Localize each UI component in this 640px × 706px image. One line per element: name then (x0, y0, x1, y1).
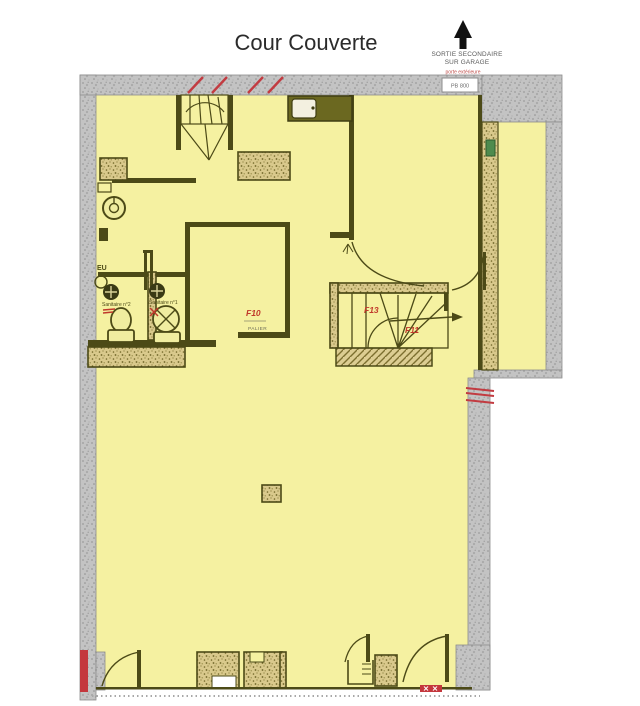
wall-right-strip (546, 122, 562, 370)
exit-note-line1: SORTIE SECONDAIRE (431, 51, 502, 58)
door-leaf-landing (483, 252, 486, 290)
wall-f10-right (285, 222, 290, 338)
label-f11: F11 (405, 325, 419, 335)
wall-corridor-divider (482, 122, 498, 370)
wc-south-bench (88, 347, 185, 367)
pier-a-notch (212, 676, 236, 688)
toilet-icon (111, 308, 131, 332)
exit-door-ref: PB 800 (451, 84, 469, 90)
up-arrow-stem (460, 36, 467, 49)
wall-bottom-right-block (456, 645, 490, 690)
wall-wc-bottom (88, 340, 216, 347)
up-arrow-icon (454, 20, 472, 38)
wall-right-lower (468, 378, 490, 690)
wall-f10-top (185, 222, 290, 227)
floor-main-room (96, 378, 468, 688)
wall-f10-left (185, 222, 190, 345)
pipe-right (150, 252, 153, 290)
label-f10: F10 (246, 308, 261, 318)
toilet-tank (154, 332, 180, 343)
pipe-left (144, 252, 147, 290)
red-marker-left-wall (80, 650, 88, 692)
floorplan-drawing: Cour Couverte SORTIE SECONDAIRE SUR GARA… (0, 0, 640, 706)
understair-hatched-area (336, 348, 432, 366)
door-leaf-bottom-right (445, 634, 449, 682)
label-sanitaire2: Sanitaire n°2 (102, 302, 131, 308)
floor-corridor (498, 122, 546, 370)
toilet-tank (108, 330, 134, 342)
label-f13: F13 (364, 305, 379, 315)
label-eu: EU (97, 265, 107, 272)
shopfront-pier-c (375, 655, 397, 686)
wall-partition-stub (330, 232, 351, 238)
shopfront-sliver (280, 652, 286, 688)
wall-f10-bottom (238, 332, 290, 338)
duct-box (99, 228, 108, 241)
hatched-table (238, 152, 290, 180)
label-palier: PALIER (248, 326, 267, 332)
pier-upper-left (100, 158, 127, 180)
wall-stair-right-cheek (228, 95, 233, 150)
wall-left (80, 75, 96, 700)
wall-stair-left-cheek (176, 95, 181, 150)
stair-enclosure-top-wall (330, 283, 448, 293)
exit-note-sub: porte extérieure (445, 70, 480, 76)
door-leaf-bottom-left (137, 650, 141, 688)
shopfront-threshold (96, 687, 472, 690)
wall-corridor-end (474, 370, 562, 378)
center-pillar (262, 485, 281, 502)
floorplan-page: Cour Couverte SORTIE SECONDAIRE SUR GARA… (0, 0, 640, 706)
green-vent-mark (486, 140, 495, 156)
wall-wc-top (98, 272, 186, 277)
page-title: Cour Couverte (234, 30, 377, 55)
wall-mainroom-right (478, 95, 482, 370)
exit-note-line2: SUR GARAGE (445, 59, 490, 66)
label-sanitaire1: Sanitaire n°1 (149, 300, 178, 306)
stair-enclosure-left-wall (330, 283, 338, 348)
door-leaf-vestibule (366, 634, 370, 662)
pier-b-notch (250, 652, 264, 662)
wall-bottom-left-pier (96, 652, 105, 690)
wall-top-right-block (482, 75, 562, 122)
red-marker-exit (420, 685, 442, 692)
kitchen-counter (288, 96, 352, 121)
